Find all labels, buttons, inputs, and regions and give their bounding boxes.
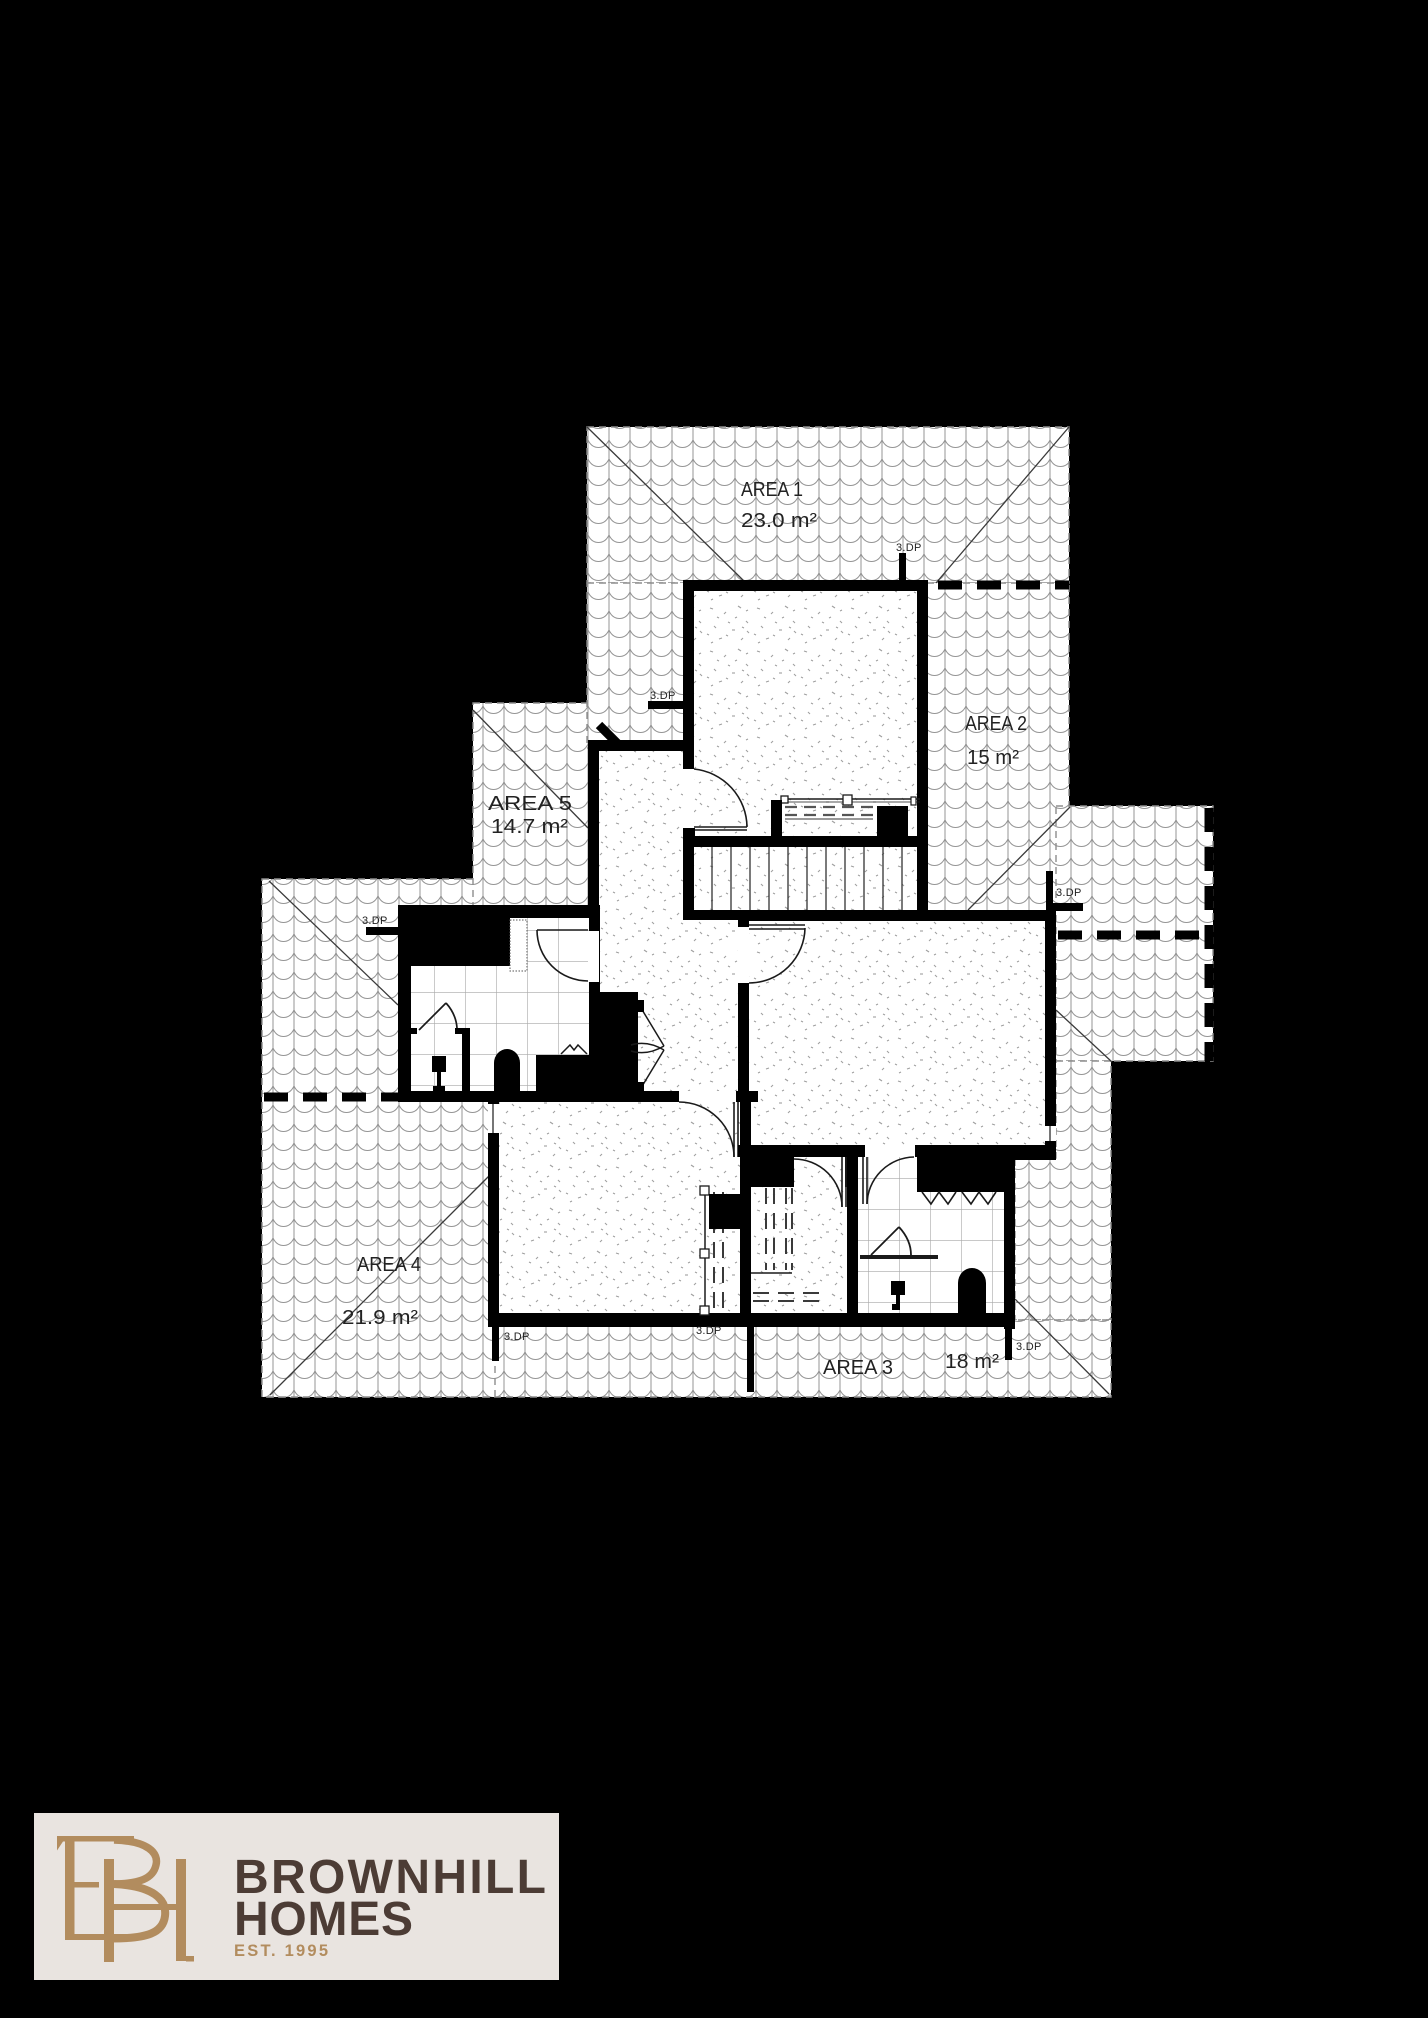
svg-text:21.9 m²: 21.9 m² bbox=[342, 1307, 418, 1329]
svg-text:3.DP: 3.DP bbox=[362, 915, 388, 927]
svg-text:3.DP: 3.DP bbox=[1016, 1341, 1042, 1353]
svg-text:15 m²: 15 m² bbox=[967, 747, 1019, 769]
svg-text:23.0 m²: 23.0 m² bbox=[741, 510, 817, 532]
svg-text:14.7 m²: 14.7 m² bbox=[491, 816, 568, 838]
svg-text:AREA 4: AREA 4 bbox=[357, 1254, 421, 1276]
svg-text:EST. 1995: EST. 1995 bbox=[234, 1942, 328, 1960]
svg-text:3.DP: 3.DP bbox=[650, 690, 676, 702]
svg-text:3.DP: 3.DP bbox=[504, 1331, 530, 1343]
svg-text:18 m²: 18 m² bbox=[945, 1351, 999, 1373]
svg-text:AREA 1: AREA 1 bbox=[741, 479, 803, 501]
svg-text:AREA 2: AREA 2 bbox=[965, 713, 1027, 735]
svg-text:AREA 3: AREA 3 bbox=[823, 1357, 893, 1379]
svg-text:3.DP: 3.DP bbox=[696, 1325, 722, 1337]
svg-text:AREA 5: AREA 5 bbox=[488, 793, 572, 815]
svg-text:3.DP: 3.DP bbox=[1056, 887, 1082, 899]
svg-text:3.DP: 3.DP bbox=[896, 542, 922, 554]
svg-text:HOMES: HOMES bbox=[234, 1893, 413, 1946]
